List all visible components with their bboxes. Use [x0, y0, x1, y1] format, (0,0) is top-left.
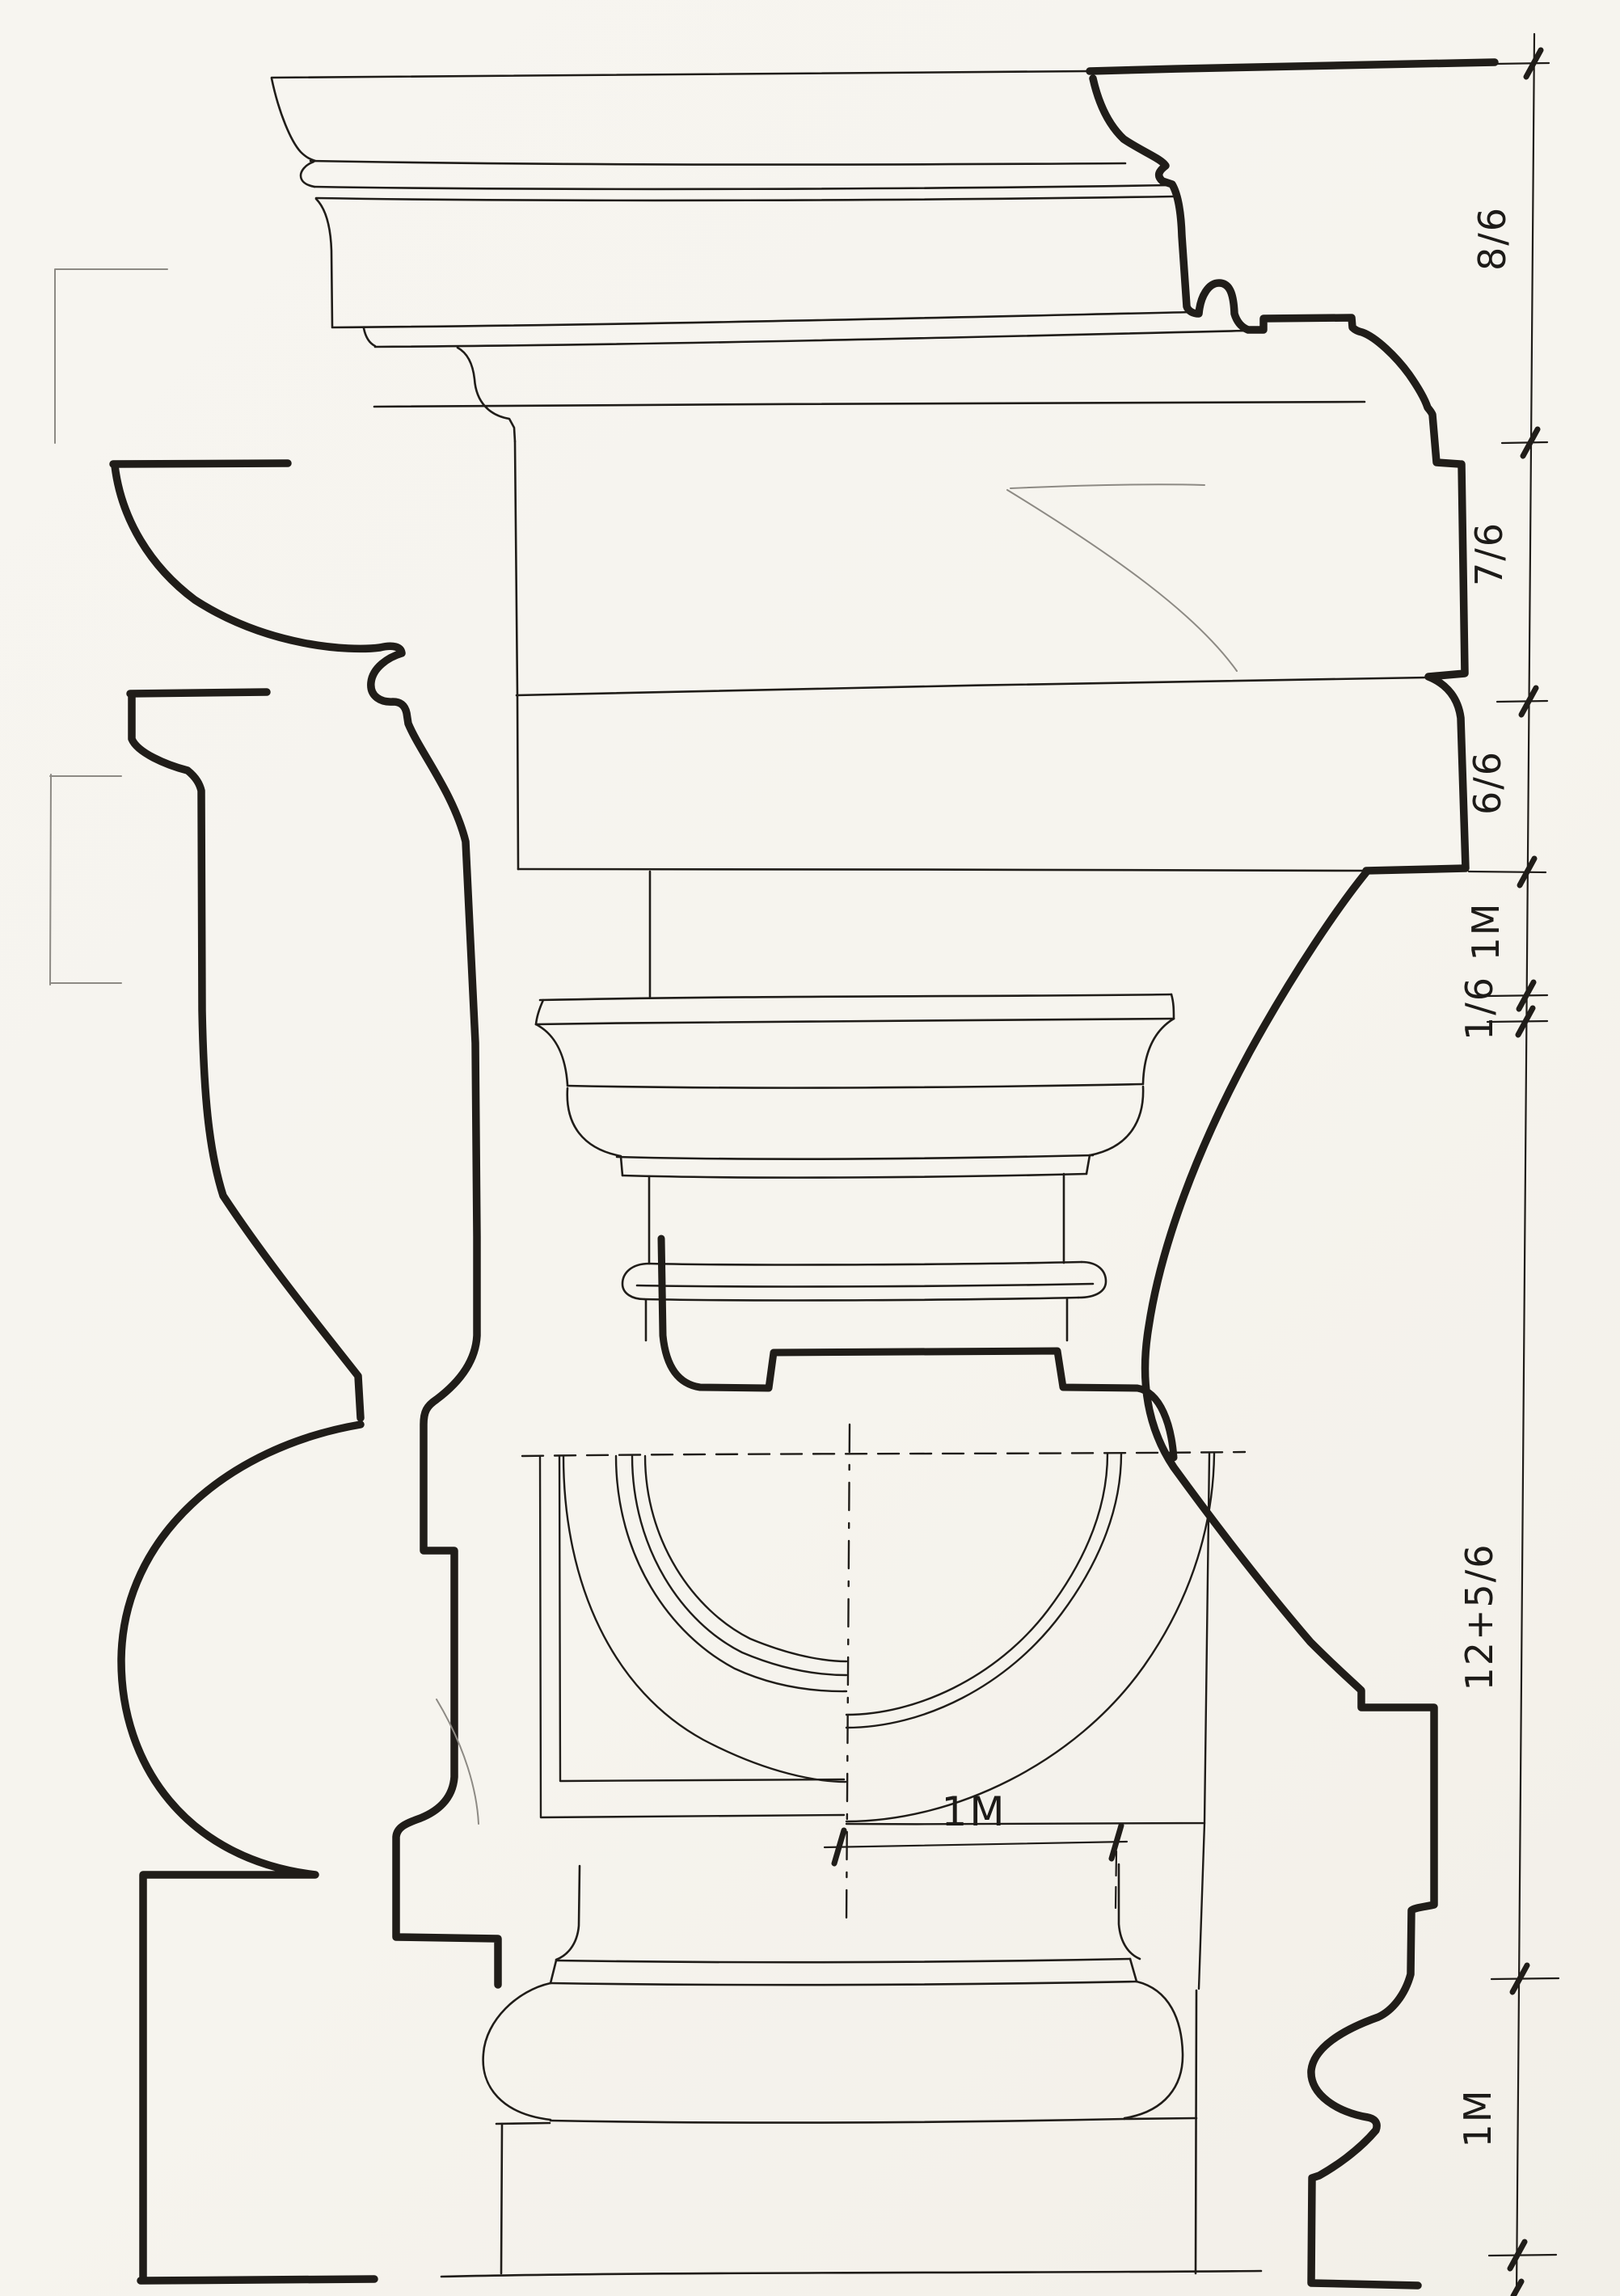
dim-label-shaft: 12+5/6 — [1458, 1543, 1501, 1690]
echinus-left — [567, 1088, 621, 1156]
plan-arc-right-2 — [846, 1454, 1121, 1728]
astragal-left-bead — [622, 1264, 649, 1299]
astragal-bottom-line — [644, 1298, 1078, 1300]
bed-step — [364, 328, 375, 346]
entablature-right-profile — [1090, 62, 1495, 871]
pencil-arc-1 — [1007, 490, 1237, 671]
cincture-bottom-line — [551, 1982, 1137, 1985]
plan-dim-ext-right — [1116, 1851, 1116, 1908]
dimension-labels: 8/6 7/6 6/6 1M 1/6 12+5/6 1M 1M — [942, 206, 1514, 2148]
plan-dashed-line — [522, 1452, 1245, 1456]
dimension-line — [1517, 34, 1534, 2294]
right-base-detail-profile — [1145, 872, 1434, 2285]
torus-right — [1124, 1982, 1183, 2118]
pencil-box-2 — [50, 774, 121, 985]
architrave-soffit-line — [518, 869, 1366, 871]
dim-label-astragal: 1/6 — [1458, 976, 1501, 1040]
ext-line-7 — [1491, 1978, 1559, 1979]
shaft-break-section — [661, 1239, 1174, 1458]
plan-left-square-outer — [540, 1456, 844, 1817]
plan-arc-right-1 — [846, 1454, 1107, 1715]
ext-line-3 — [1497, 701, 1547, 702]
plan-arc-left-1 — [645, 1456, 846, 1661]
capital-band-line-2 — [617, 1155, 1093, 1159]
plan-right-square-extension — [1199, 1823, 1204, 1989]
plan-right-square — [846, 1454, 1209, 1824]
cornice-right-moulding — [1093, 78, 1460, 464]
abacus-flare-left — [536, 1024, 567, 1085]
ext-line-8 — [1489, 2255, 1556, 2256]
frieze-architrave-elevation — [515, 441, 1428, 998]
plan-dim-line — [825, 1842, 1127, 1847]
tick-9 — [1513, 2281, 1521, 2296]
dim-label-architrave: 6/6 — [1466, 750, 1509, 815]
astragal-mid-line — [637, 1284, 1093, 1286]
plan-arc-left-outer — [563, 1456, 846, 1782]
plan-arc-left-2 — [632, 1456, 846, 1675]
abacus-top-line — [540, 994, 1171, 1000]
shaft-right-lower — [1119, 1864, 1140, 1959]
architrave-top-line — [517, 677, 1428, 695]
right-detail-profile — [1145, 872, 1434, 2285]
abacus-flare-right — [1143, 1019, 1174, 1083]
shaft-left-lower — [556, 1866, 580, 1960]
cincture-top-line — [556, 1959, 1130, 1962]
base-elevation — [441, 1864, 1261, 2277]
frieze-architrave-right-face — [1366, 464, 1466, 871]
column-order-plate: 8/6 7/6 6/6 1M 1/6 12+5/6 1M 1M — [0, 0, 1620, 2296]
ext-line-4 — [1469, 872, 1546, 872]
astragal-top-line — [649, 1262, 1082, 1264]
frieze-left-edge — [515, 441, 518, 869]
pencil-construction-marks — [50, 269, 1237, 1824]
fillet-line-1 — [310, 161, 1125, 165]
astragal-right-bead — [1078, 1262, 1106, 1298]
fillet-line-2 — [314, 185, 1171, 189]
corona-bottom-line — [332, 312, 1193, 327]
dim-label-frieze: 7/6 — [1467, 521, 1511, 586]
capital-elevation — [536, 994, 1174, 1340]
bed-line — [375, 331, 1247, 347]
plan-arc-left-3 — [616, 1456, 846, 1691]
dimension-system — [825, 34, 1559, 2296]
detail-ovolo-profile — [132, 694, 361, 1418]
detail-cyma-top-line — [113, 463, 288, 464]
dim-label-base: 1M — [1456, 2089, 1500, 2148]
dim-label-capital: 1M — [1464, 902, 1508, 961]
shaft-break-line — [661, 1239, 1174, 1458]
capital-band-line-3 — [622, 1174, 1086, 1178]
cornice-top-heavy — [1090, 62, 1495, 71]
scanned-drawing-sheet: 8/6 7/6 6/6 1M 1/6 12+5/6 1M 1M — [0, 0, 1620, 2296]
left-detail-profiles — [113, 463, 498, 2281]
crown-left-curve — [272, 78, 315, 161]
plan-view — [522, 1424, 1245, 1989]
plan-arc-right-outer — [846, 1454, 1214, 1821]
torus-left — [483, 1983, 551, 2120]
torus-bottom-line — [551, 2119, 1124, 2123]
detail-torus-plinth-profile — [121, 1424, 374, 2281]
shaft-stub-sides — [646, 1298, 1067, 1340]
echinus-right — [1090, 1087, 1143, 1155]
ext-line-2 — [1502, 442, 1547, 443]
plan-left-square-inner — [559, 1456, 844, 1781]
ground-line — [441, 2271, 1261, 2277]
plinth-sides — [501, 1990, 1196, 2273]
cornice-top-line — [272, 71, 1090, 78]
crown-left-bead — [301, 162, 314, 187]
abacus-left-end — [536, 1000, 543, 1024]
abacus-bottom-line — [536, 1019, 1174, 1024]
corona-left-face — [316, 199, 332, 327]
abacus-right-end — [1171, 994, 1174, 1019]
frieze-bracket-ogee — [458, 348, 515, 441]
pencil-box-1 — [55, 269, 167, 443]
fillet-line-3 — [316, 196, 1174, 200]
capital-band-line-1 — [567, 1084, 1143, 1088]
frieze-top-line — [374, 402, 1365, 407]
dim-label-cornice: 8/6 — [1470, 206, 1514, 271]
detail-ovolo-top-line — [130, 692, 267, 694]
ext-line-top — [1494, 63, 1549, 64]
pencil-stray-1 — [1010, 484, 1204, 488]
plan-dim-label: 1M — [942, 1788, 1007, 1835]
capital-neck-sides — [649, 1174, 1064, 1263]
cornice-elevation — [272, 71, 1365, 441]
